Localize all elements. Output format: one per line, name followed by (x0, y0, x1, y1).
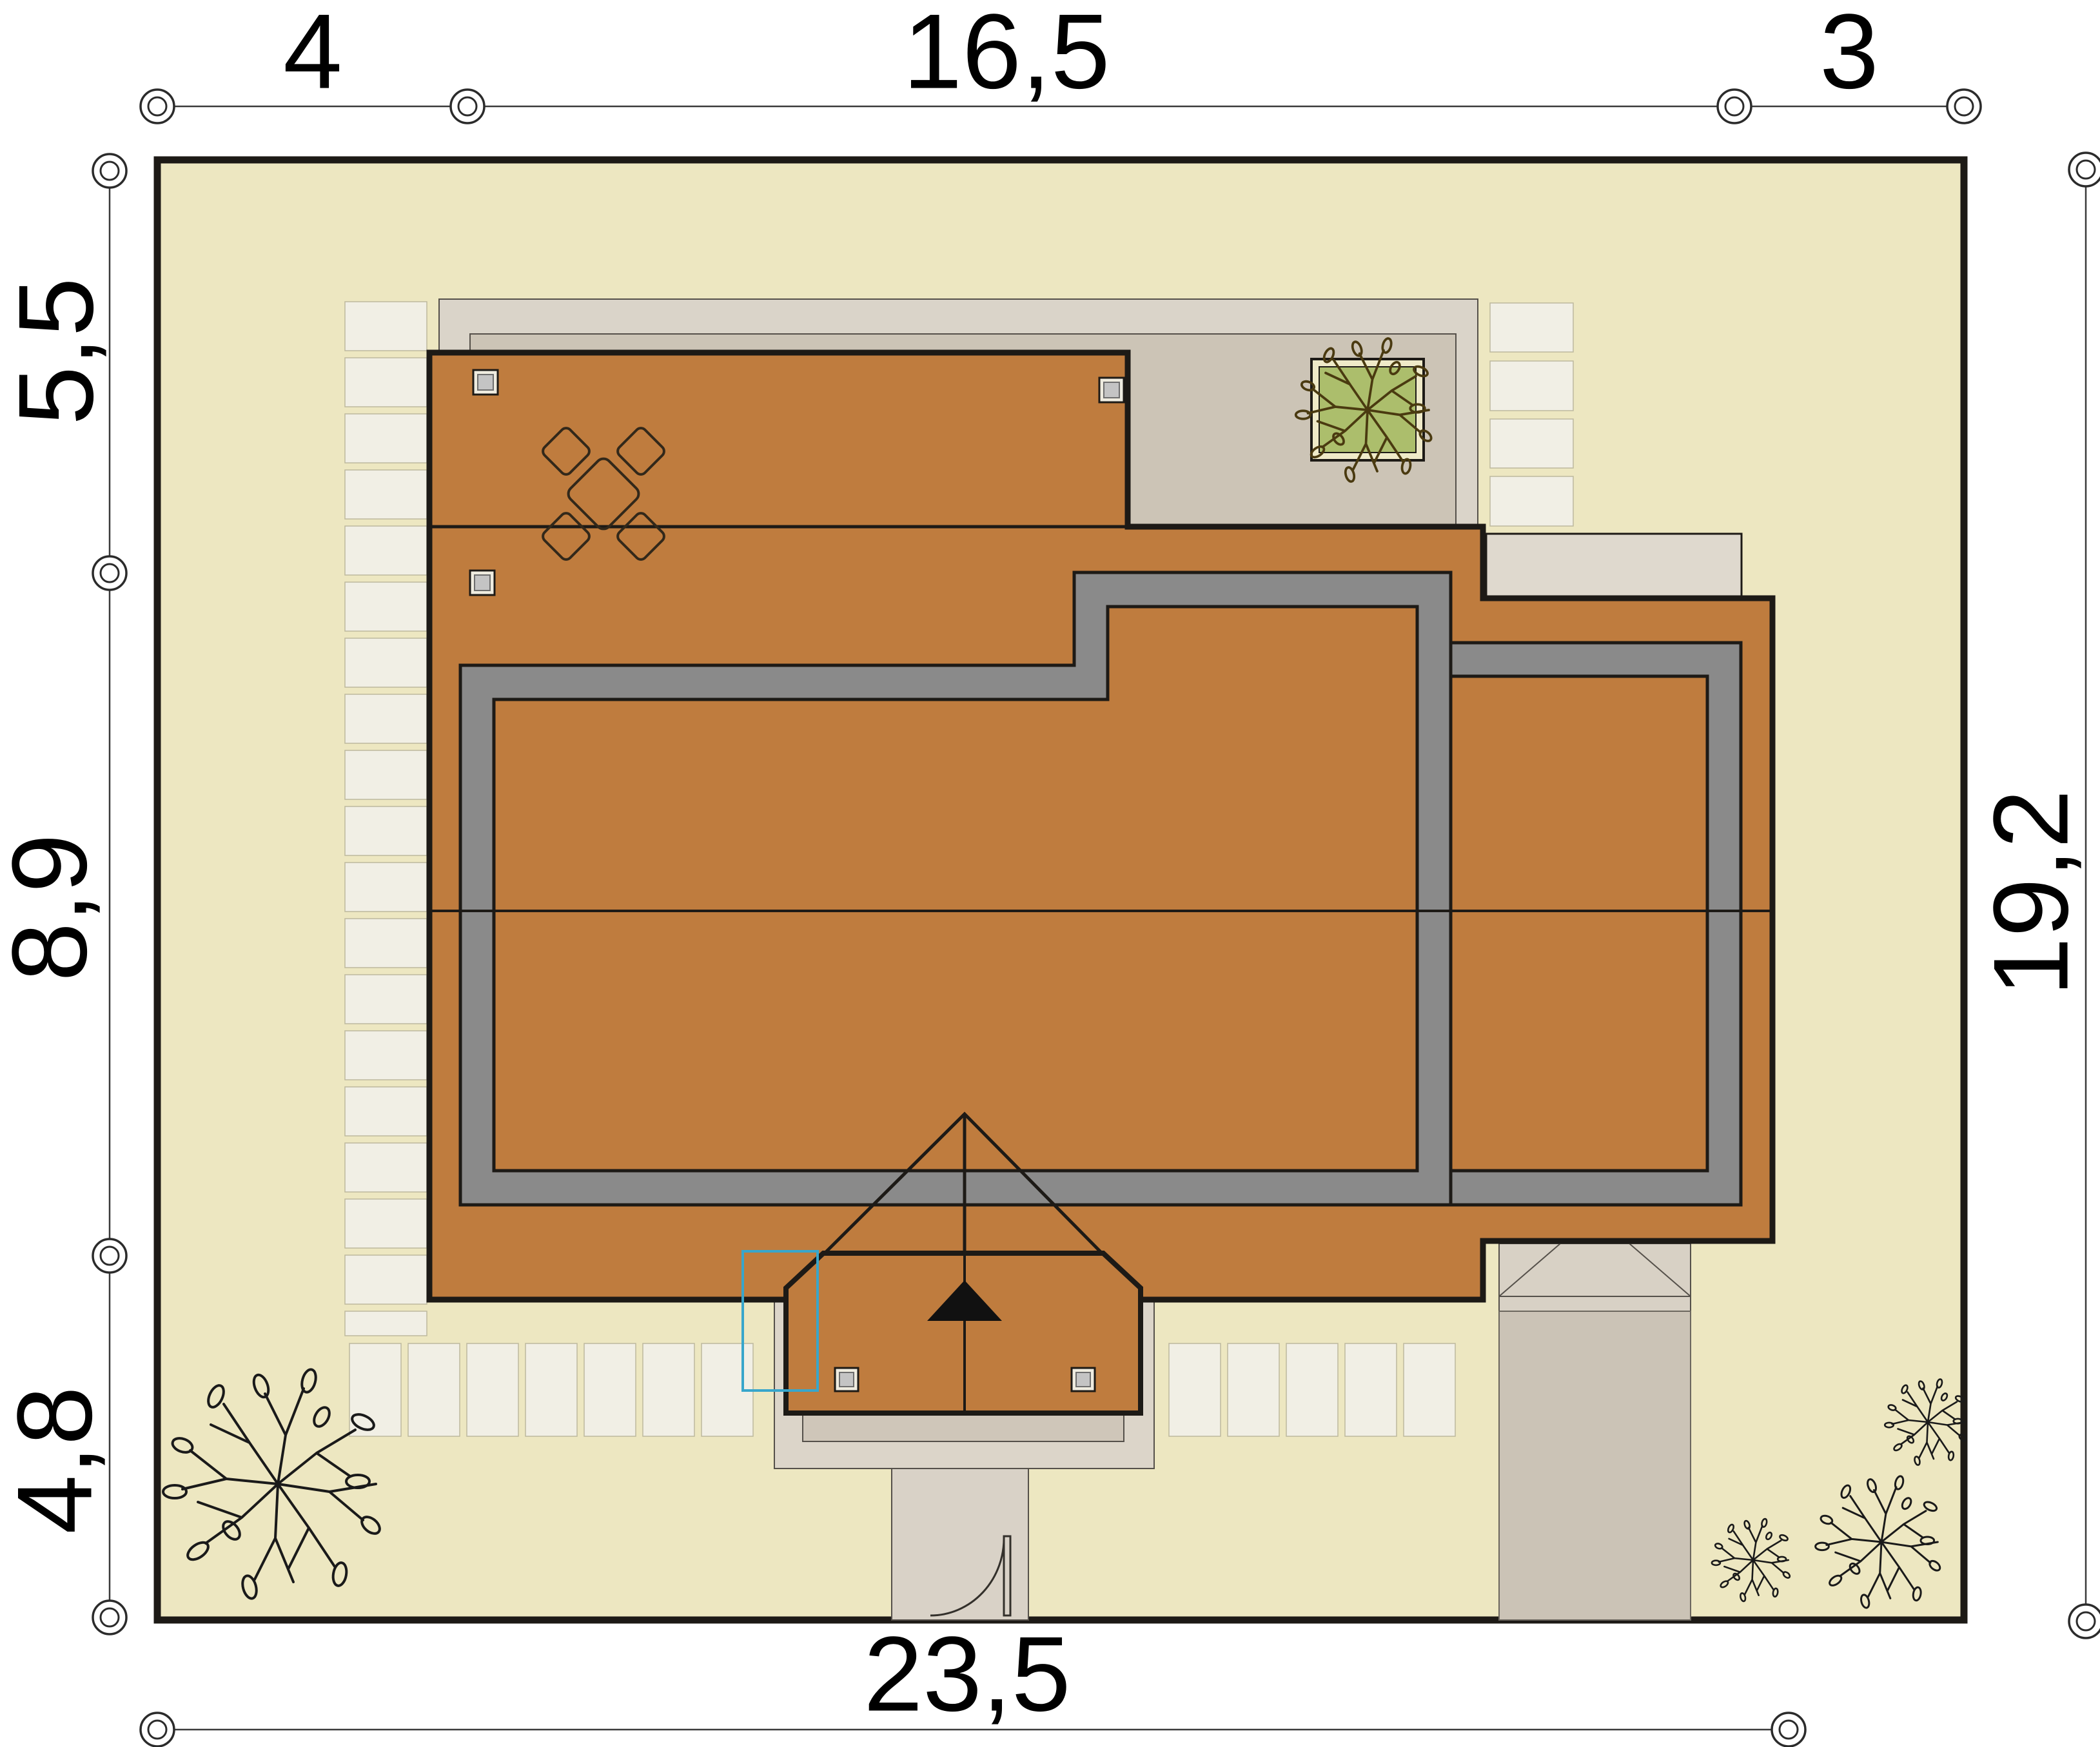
side-patio (1486, 534, 1742, 598)
site-plan-canvas: 4 16,5 3 5,5 8,9 4,8 19,2 23,5 (0, 0, 2100, 1747)
dim-label-right: 19,2 (1978, 789, 2085, 996)
dim-label-top-right: 3 (1820, 0, 1879, 105)
dim-label-top-center: 16,5 (903, 0, 1110, 105)
dim-label-left-middle: 8,9 (0, 834, 103, 981)
roof-window-icon (1072, 1368, 1095, 1391)
dim-label-bottom: 23,5 (863, 1621, 1070, 1728)
garage-canopy (1499, 1244, 1691, 1311)
porch-apron-step (803, 1414, 1124, 1441)
paving-slab-column-left (345, 302, 427, 1336)
dim-label-top-left: 4 (283, 0, 342, 105)
roof-window-icon (835, 1368, 858, 1391)
driveway (1499, 1311, 1691, 1620)
roof-window-icon (1099, 378, 1124, 402)
roof-window-icon (473, 370, 498, 395)
dim-label-left-lower: 4,8 (2, 1386, 108, 1534)
dim-label-left-upper: 5,5 (3, 277, 110, 425)
roof-window-icon (470, 571, 495, 595)
site-plan-drawing (0, 0, 2100, 1747)
entry-walkway (892, 1469, 1028, 1620)
